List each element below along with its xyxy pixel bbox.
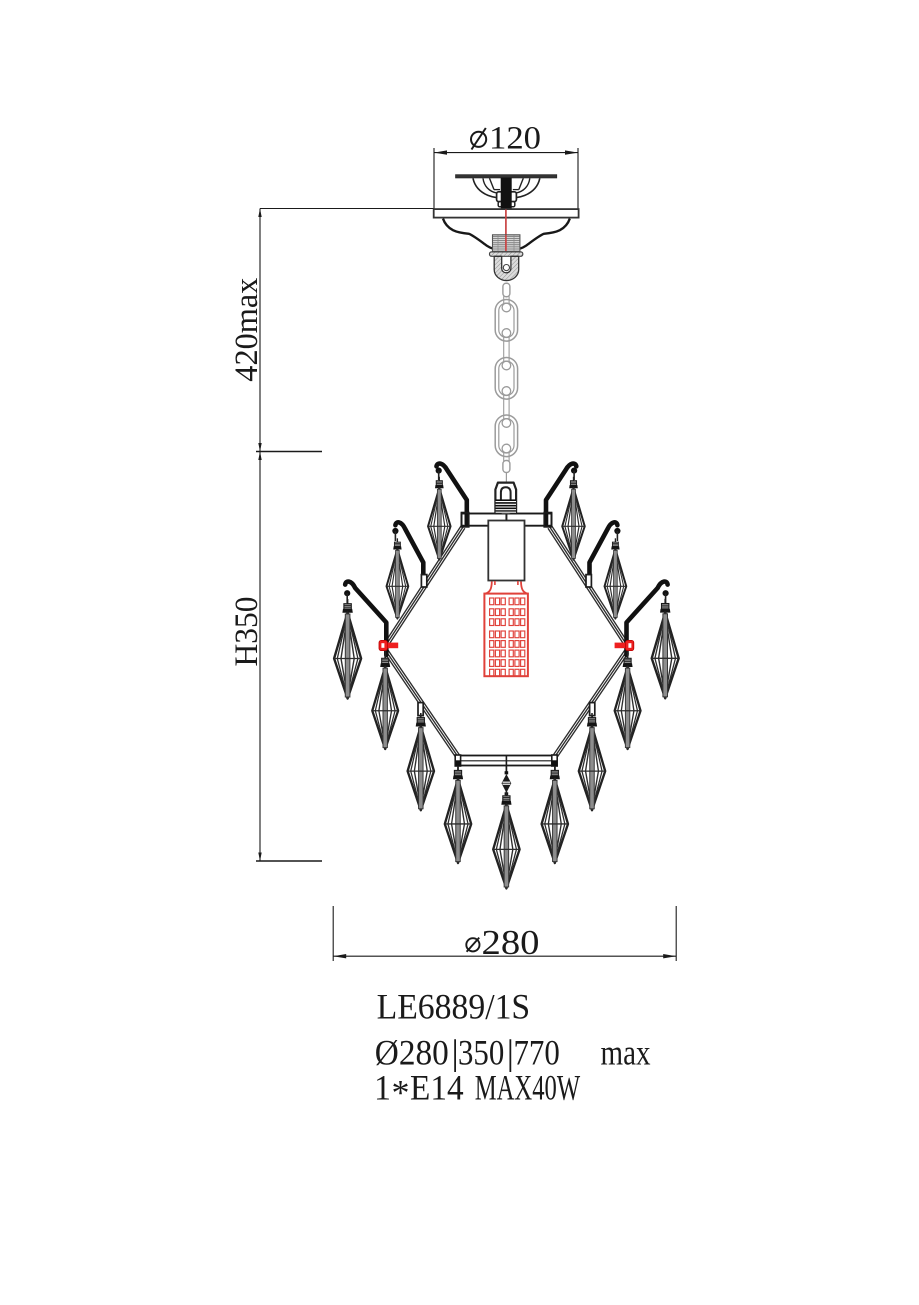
svg-text:MAX40W: MAX40W bbox=[475, 1068, 580, 1108]
svg-text:120: 120 bbox=[489, 120, 541, 156]
svg-text:*: * bbox=[392, 1073, 410, 1113]
svg-text:LE6889/1S: LE6889/1S bbox=[377, 986, 531, 1026]
svg-text:770: 770 bbox=[514, 1033, 560, 1073]
svg-text:H350: H350 bbox=[229, 597, 265, 667]
svg-text:max: max bbox=[601, 1033, 651, 1073]
svg-text:1: 1 bbox=[374, 1068, 391, 1108]
svg-text:280: 280 bbox=[482, 923, 540, 962]
svg-text:350: 350 bbox=[458, 1033, 504, 1073]
svg-text:E14: E14 bbox=[410, 1068, 464, 1108]
svg-text:420max: 420max bbox=[229, 277, 265, 381]
svg-text:Ø280: Ø280 bbox=[375, 1033, 449, 1073]
